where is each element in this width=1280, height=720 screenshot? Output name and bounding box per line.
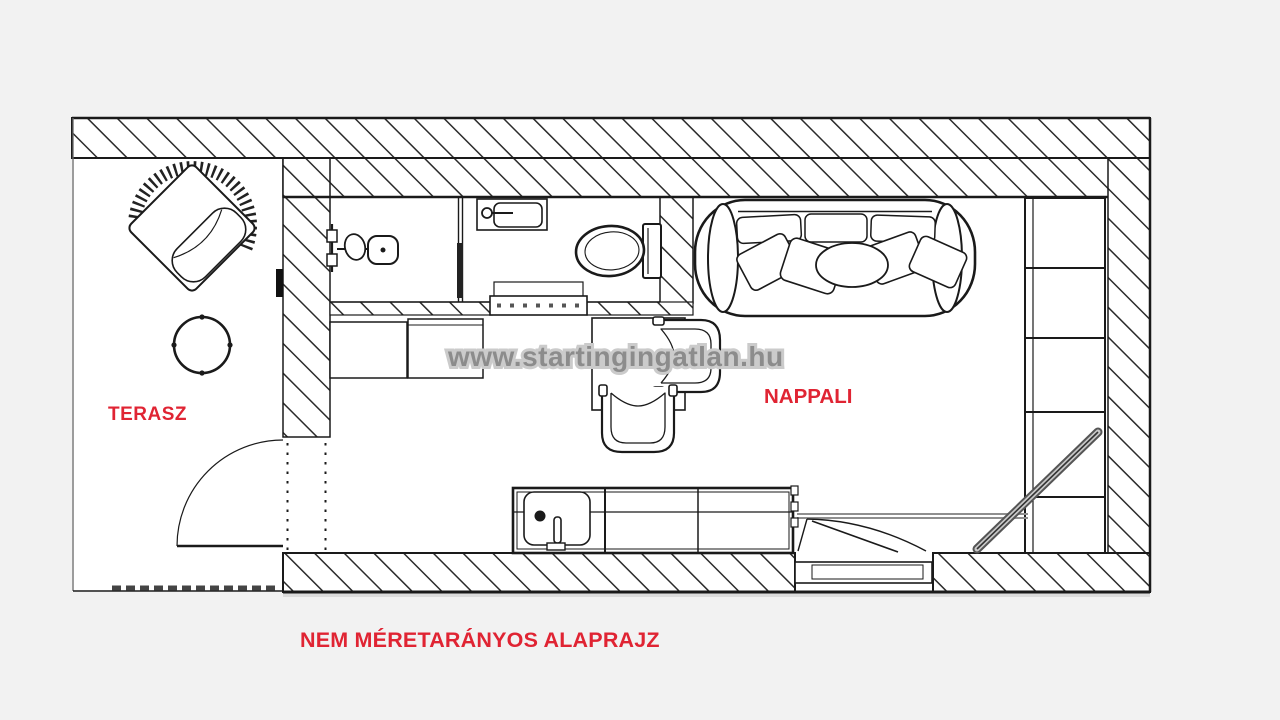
wall-bottom-left: [283, 553, 795, 592]
wall-top-outer: [72, 118, 1150, 158]
washbasin: [477, 199, 547, 230]
desk-chair-bottom: [599, 385, 677, 452]
sliding-door: [490, 296, 587, 315]
wall-shadow: [283, 594, 1150, 598]
wall-right: [1108, 158, 1150, 592]
outdoor-step: [795, 562, 932, 583]
wall-terrace-divider: [283, 158, 330, 437]
kitchen-sink: [524, 492, 590, 550]
watermark-text: www.startingingatlan.hu: [447, 341, 784, 372]
wall-bottom-right: [933, 553, 1150, 592]
wall-bathroom-bottom-left: [330, 302, 492, 315]
wall-door-stop: [276, 269, 283, 297]
living-room-label: NAPPALI: [764, 385, 852, 408]
floor-plan-drawing: TERASZ NAPPALI NEM MÉRETARÁNYOS ALAPRAJZ…: [0, 0, 1280, 720]
terrace-label: TERASZ: [108, 404, 187, 425]
wall-bathroom-right: [660, 197, 693, 303]
toilet: [574, 224, 661, 279]
wall-bathroom-bottom-right: [587, 302, 693, 315]
shelving-unit: [1025, 198, 1105, 553]
disclaimer-label: NEM MÉRETARÁNYOS ALAPRAJZ: [300, 627, 660, 652]
sofa-with-pillows: [695, 200, 975, 316]
floor-plan-page: TERASZ NAPPALI NEM MÉRETARÁNYOS ALAPRAJZ…: [0, 0, 1280, 720]
wall-top-inner: [283, 158, 1150, 197]
